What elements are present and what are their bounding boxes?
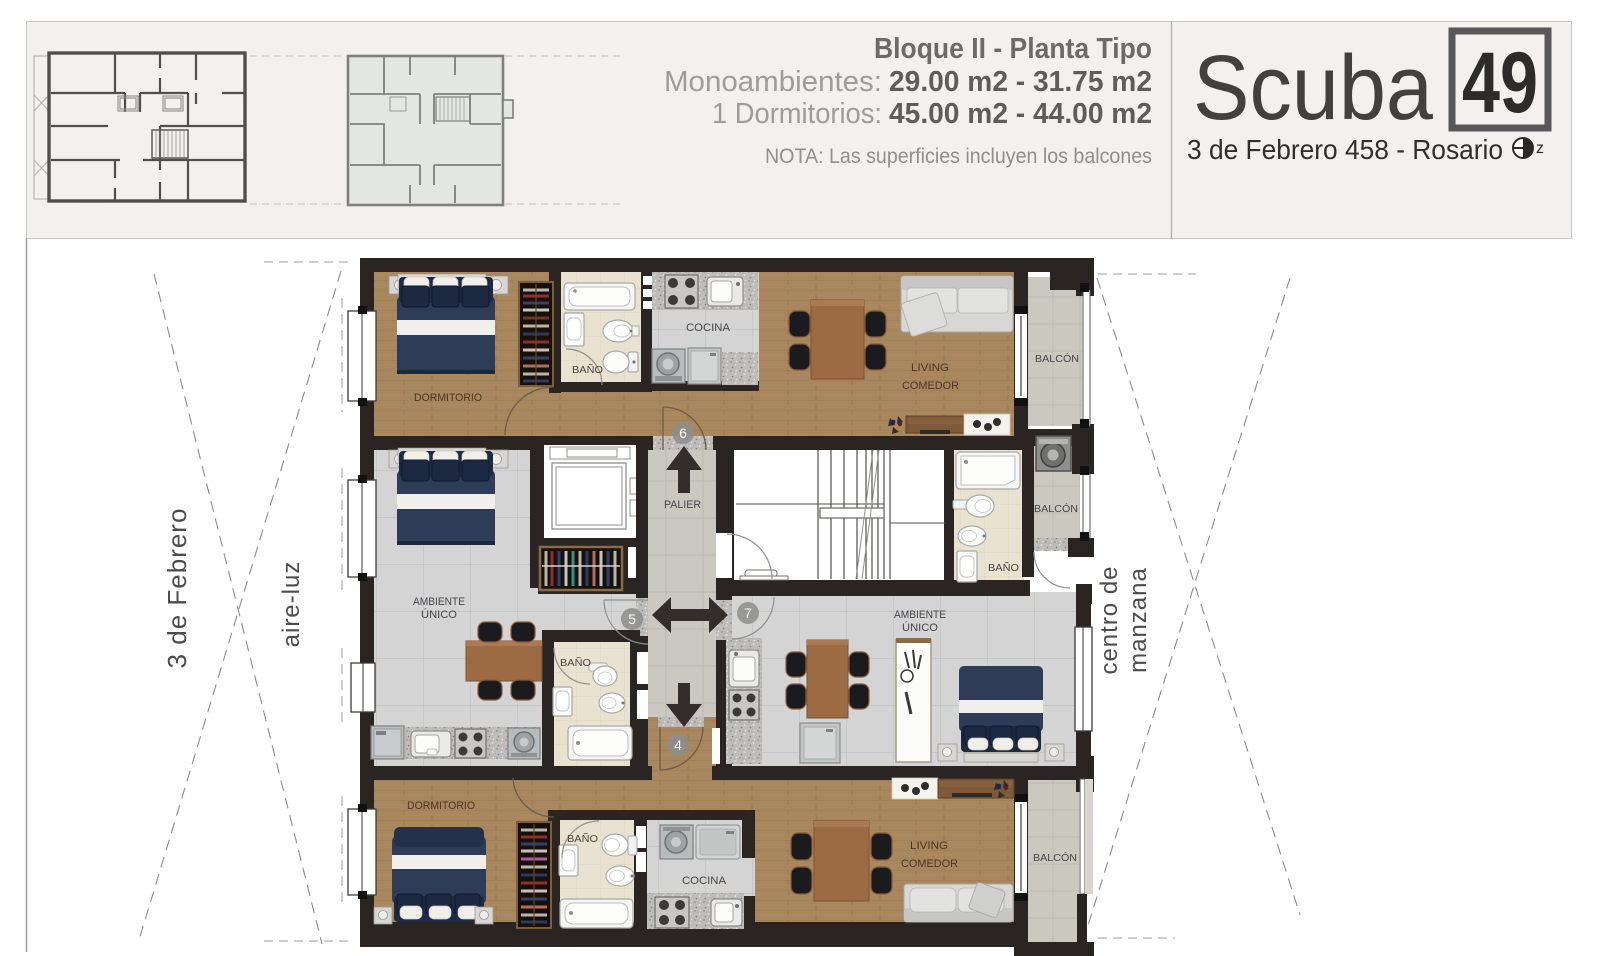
svg-text:DORMITORIO: DORMITORIO	[407, 800, 475, 812]
svg-text:AMBIENTE: AMBIENTE	[894, 609, 946, 621]
svg-text:COCINA: COCINA	[682, 875, 727, 887]
svg-text:BAÑO: BAÑO	[988, 561, 1019, 574]
svg-text:LIVING: LIVING	[911, 362, 949, 374]
svg-text:5: 5	[628, 611, 636, 627]
svg-text:manzana: manzana	[1125, 567, 1152, 673]
svg-text:COMEDOR: COMEDOR	[902, 380, 959, 392]
svg-text:NOTA: Las superficies incluyen: NOTA: Las superficies incluyen los balco…	[765, 144, 1152, 168]
svg-text:centro de: centro de	[1096, 565, 1123, 674]
svg-text:aire-luz: aire-luz	[278, 561, 305, 648]
svg-text:Bloque II - Planta Tipo: Bloque II - Planta Tipo	[874, 33, 1152, 65]
svg-text:3 de Febrero: 3 de Febrero	[162, 508, 192, 669]
svg-text:z: z	[1536, 140, 1544, 157]
svg-text:7: 7	[744, 605, 752, 621]
svg-text:BAÑO: BAÑO	[572, 363, 603, 376]
svg-text:6: 6	[679, 425, 687, 441]
svg-text:45.00 m2 - 44.00 m2: 45.00 m2 - 44.00 m2	[889, 98, 1152, 130]
svg-text:ÚNICO: ÚNICO	[902, 621, 938, 634]
svg-text:BALCÓN: BALCÓN	[1033, 851, 1077, 864]
svg-text:DORMITORIO: DORMITORIO	[414, 392, 482, 404]
svg-text:BALCÓN: BALCÓN	[1035, 352, 1079, 365]
svg-text:49: 49	[1462, 35, 1538, 131]
svg-text:Monoambientes:: Monoambientes:	[664, 66, 882, 98]
svg-text:LIVING: LIVING	[910, 840, 948, 852]
svg-text:PALIER: PALIER	[664, 499, 701, 511]
svg-text:29.00 m2 - 31.75 m2: 29.00 m2 - 31.75 m2	[889, 66, 1152, 98]
svg-text:Scuba: Scuba	[1193, 37, 1434, 139]
svg-text:BAÑO: BAÑO	[567, 832, 598, 845]
svg-text:3 de Febrero 458 - Rosario: 3 de Febrero 458 - Rosario	[1187, 134, 1503, 165]
svg-text:COCINA: COCINA	[686, 322, 731, 334]
svg-text:4: 4	[674, 737, 682, 753]
svg-text:COMEDOR: COMEDOR	[901, 858, 958, 870]
svg-text:AMBIENTE: AMBIENTE	[413, 596, 465, 608]
svg-text:ÚNICO: ÚNICO	[421, 608, 457, 621]
svg-text:1 Dormitorios:: 1 Dormitorios:	[712, 98, 882, 130]
svg-text:BALCÓN: BALCÓN	[1034, 502, 1078, 515]
svg-text:BAÑO: BAÑO	[560, 656, 591, 669]
